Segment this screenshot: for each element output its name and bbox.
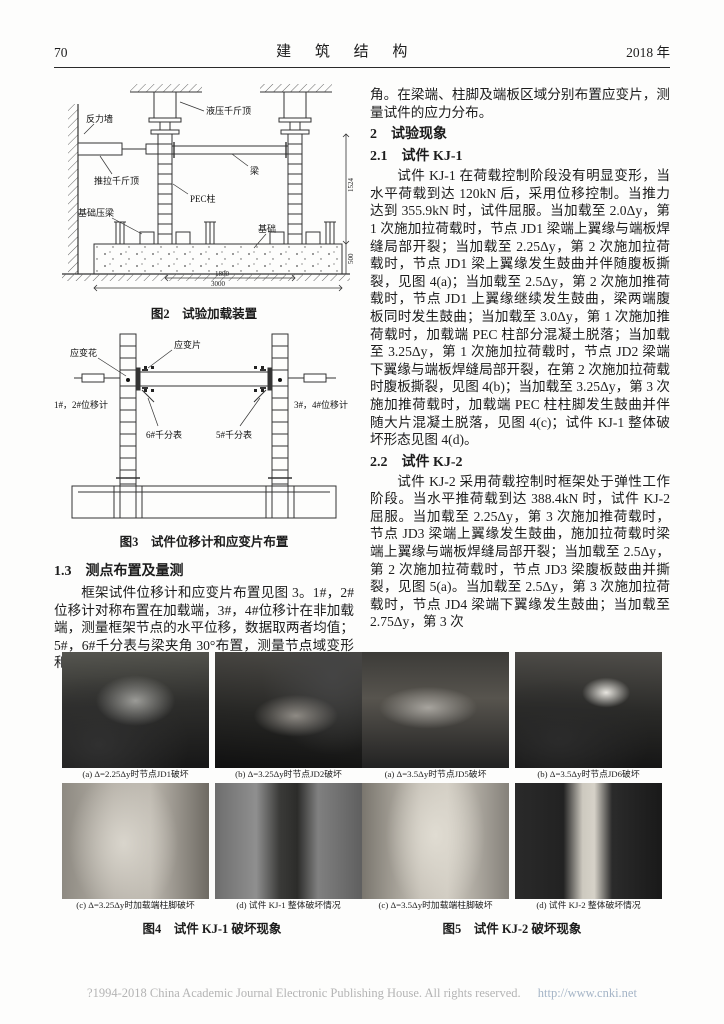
photo-section: (a) Δ=2.25Δy时节点JD1破坏 (b) Δ=3.25Δy时节点JD2破… [62,652,662,937]
left-column: 1524 500 1800 3000 反力墙 液压千斤顶 推拉千斤顶 梁 [54,82,354,644]
strain-gauge-label: 应变片 [174,339,201,350]
photo-kj2-overall [515,783,662,899]
photo-kj2-d-caption: (d) 试件 KJ-2 整体破坏情况 [515,899,662,912]
pec-column-right [288,134,302,244]
pec-column-left [158,134,172,244]
figure3: 应变花 应变片 1#，2#位移计 6#千分表 5#千分表 3#，4#位移计 图3… [54,328,354,550]
dial-6-label: 6#千分表 [146,429,182,440]
push-pull-jack-label: 推拉千斤顶 [94,175,139,186]
section-2-1-heading: 2.1 试件 KJ-1 [370,145,670,165]
continuation-paragraph: 角。在梁端、柱脚及端板区域分别布置应变片，测量试件的应力分布。 [370,86,670,121]
journal-title: 建 筑 结 构 [276,40,417,61]
section-2-heading: 2 试验现象 [370,123,670,143]
photo-kj1-jd2 [215,652,362,768]
photo-kj2-a-caption: (a) Δ=3.5Δy时节点JD5破坏 [362,768,509,781]
pec-column-label: PEC柱 [190,193,216,204]
cnki-url: http://www.cnki.net [538,986,637,1000]
column-right [272,334,288,484]
section-2-2-heading: 2.2 试件 KJ-2 [370,451,670,471]
kj2-paragraph: 试件 KJ-2 采用荷载控制时框架处于弹性工作阶段。当水平推荷载到达 388.4… [370,473,670,631]
disp-3-4-label: 3#，4#位移计 [294,399,348,410]
hydraulic-jack-right [279,92,311,134]
figure3-caption: 图3 试件位移计和应变片布置 [54,531,354,550]
figure2-diagram: 1524 500 1800 3000 反力墙 液压千斤顶 推拉千斤顶 梁 [54,82,354,296]
photo-kj2-b-caption: (b) Δ=3.5Δy时节点JD6破坏 [515,768,662,781]
dim-1524: 1524 [347,178,354,193]
photo-kj2-jd5 [362,652,509,768]
photo-kj1-jd1 [62,652,209,768]
reaction-wall-label: 反力墙 [86,113,113,124]
hydraulic-jack-left [149,92,181,134]
page-number: 70 [54,45,68,61]
dim-500: 500 [347,253,354,264]
photo-kj1-c-caption: (c) Δ=3.25Δy时加载端柱脚破坏 [62,899,209,912]
displacement-transducer-left [74,374,120,382]
figure2: 1524 500 1800 3000 反力墙 液压千斤顶 推拉千斤顶 梁 [54,82,354,322]
beam [172,142,288,158]
figure5-group: (a) Δ=3.5Δy时节点JD5破坏 (b) Δ=3.5Δy时节点JD6破坏 … [362,652,662,937]
displacement-transducer-right [288,374,336,382]
strain-gauge-marks [144,366,264,392]
base-beam [72,478,336,518]
dim-3000: 3000 [211,280,226,288]
foundation-label: 基础 [258,223,276,234]
photo-kj1-d-caption: (d) 试件 KJ-1 整体破坏情况 [215,899,362,912]
strain-rosette-label: 应变花 [70,347,97,358]
copyright-footer: ?1994-2018 China Academic Journal Electr… [0,986,724,1001]
page-header: 70 建 筑 结 构 2018 年 [54,40,670,68]
figure4-group: (a) Δ=2.25Δy时节点JD1破坏 (b) Δ=3.25Δy时节点JD2破… [62,652,362,937]
figure5-caption: 图5 试件 KJ-2 破坏现象 [362,918,662,937]
photo-kj2-c-caption: (c) Δ=3.5Δy时加载端柱脚破坏 [362,899,509,912]
copyright-text: ?1994-2018 China Academic Journal Electr… [87,986,521,1000]
dim-1800: 1800 [215,270,230,278]
column-left [120,334,136,484]
figure2-caption: 图2 试验加载装置 [54,303,354,322]
section-1-3-heading: 1.3 测点布置及量测 [54,560,354,580]
photo-kj2-column-base [362,783,509,899]
disp-1-2-label: 1#，2#位移计 [54,399,108,410]
photo-kj1-b-caption: (b) Δ=3.25Δy时节点JD2破坏 [215,768,362,781]
photo-kj1-overall [215,783,362,899]
anchor-rods [114,222,336,244]
foundation-press-beam-label: 基础压梁 [78,207,114,218]
strain-rosette-point [126,378,130,382]
page: 70 建 筑 结 构 2018 年 [0,0,724,937]
dial-5-label: 5#千分表 [216,429,252,440]
beam-label: 梁 [250,165,259,176]
right-column: 角。在梁端、柱脚及端板区域分别布置应变片，测量试件的应力分布。 2 试验现象 2… [370,82,670,644]
push-pull-jack [78,143,158,155]
beam [136,368,272,390]
figure4-caption: 图4 试件 KJ-1 破坏现象 [62,918,362,937]
photo-kj1-a-caption: (a) Δ=2.25Δy时节点JD1破坏 [62,768,209,781]
kj1-paragraph: 试件 KJ-1 在荷载控制阶段没有明显变形，当水平荷载到达 120kN 后，采用… [370,167,670,449]
figure3-diagram: 应变花 应变片 1#，2#位移计 6#千分表 5#千分表 3#，4#位移计 [54,328,354,524]
photo-kj2-jd6 [515,652,662,768]
photo-kj1-column-base [62,783,209,899]
strain-rosette-point-right [278,378,282,382]
publication-year: 2018 年 [626,41,670,61]
hydraulic-jack-label: 液压千斤顶 [206,105,251,116]
